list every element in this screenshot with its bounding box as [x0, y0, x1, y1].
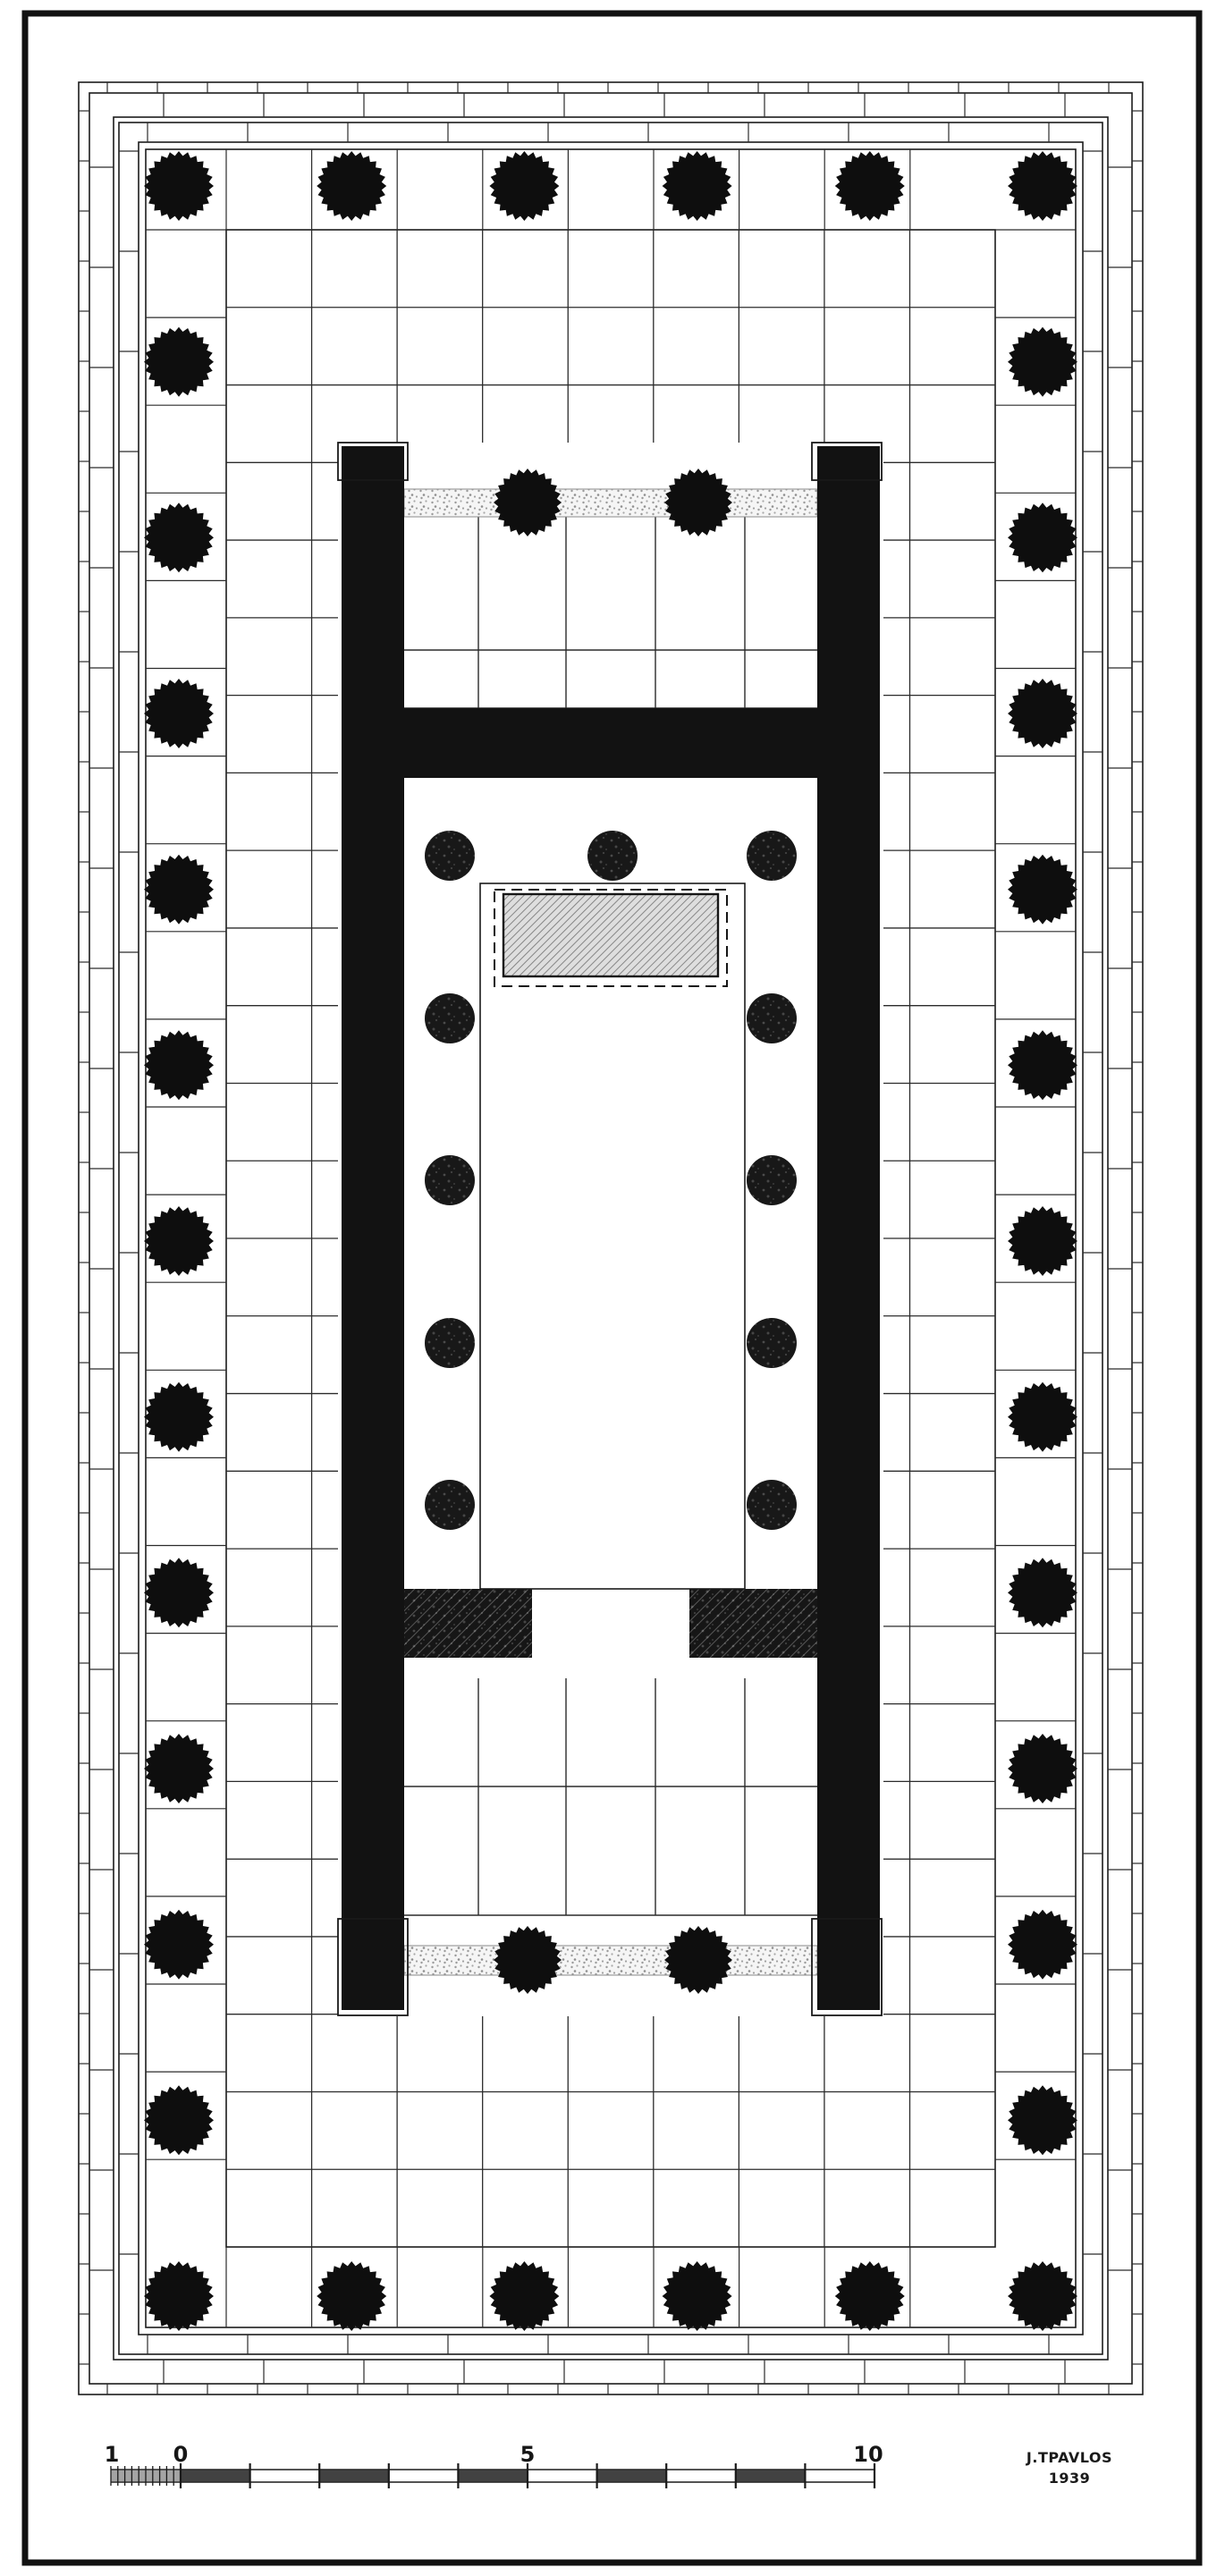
scale-dark-segment: [597, 2470, 667, 2482]
pronaos-cross-wall: [404, 708, 817, 778]
scale-label-0: 0: [173, 2442, 189, 2467]
fluted-column: [144, 1734, 214, 1803]
fluted-column: [144, 1910, 214, 1980]
fluted-column: [144, 679, 214, 748]
fluted-column: [144, 503, 214, 572]
scale-dark-segment: [319, 2470, 389, 2482]
fluted-column: [835, 151, 905, 221]
scale-label-1: 1: [105, 2442, 120, 2467]
cella-floor: [338, 443, 883, 2016]
fluted-column: [663, 151, 732, 221]
interior-column-texture: [747, 1318, 797, 1368]
fluted-column: [1008, 327, 1077, 397]
interior-column-texture: [425, 1318, 475, 1368]
interior-column-texture: [425, 1480, 475, 1530]
interior-column-texture: [425, 993, 475, 1043]
signature-year: 1939: [1049, 2470, 1091, 2487]
scale-dark-segment: [181, 2470, 250, 2482]
fluted-column: [1008, 855, 1077, 925]
plan-geometry: [0, 0, 1225, 2576]
interior-column-texture: [747, 993, 797, 1043]
temple-floor-plan: 1 0 5 10 J.TPAVLOS 1939: [0, 0, 1225, 2576]
fluted-column: [494, 1926, 562, 1994]
fluted-column: [664, 469, 732, 536]
plan-sheet: 1 0 5 10 J.TPAVLOS 1939: [0, 0, 1225, 2576]
fluted-column: [1008, 503, 1077, 572]
interior-column-texture: [747, 1480, 797, 1530]
fluted-column: [1008, 2085, 1077, 2155]
interior-column-texture: [425, 1155, 475, 1205]
fluted-column: [144, 2085, 214, 2155]
cella-wall-left: [342, 446, 404, 2010]
signature-name: J.TPAVLOS: [1026, 2449, 1112, 2466]
scale-dark-segment: [458, 2470, 528, 2482]
fluted-column: [489, 151, 559, 221]
interior-column-texture: [747, 831, 797, 881]
scale-label-10: 10: [853, 2442, 883, 2467]
pier-speckle: [404, 1589, 532, 1658]
interior-column-texture: [747, 1155, 797, 1205]
scale-label-5: 5: [520, 2442, 536, 2467]
fluted-column: [1008, 1030, 1077, 1100]
fluted-column: [144, 1206, 214, 1276]
porch-stylobate: [404, 1946, 817, 1975]
interior-column-texture: [425, 831, 475, 881]
fluted-column: [144, 151, 214, 221]
statue-base: [494, 890, 727, 986]
fluted-column: [144, 1382, 214, 1452]
cella-wall-right: [817, 446, 880, 2010]
pier-speckle: [689, 1589, 817, 1658]
cella: [338, 443, 883, 2016]
fluted-column: [144, 1030, 214, 1100]
fluted-column: [144, 327, 214, 397]
scale-dark-segment: [736, 2470, 806, 2482]
fluted-column: [1008, 1206, 1077, 1276]
fluted-column: [1008, 151, 1077, 221]
porch-stylobate: [404, 489, 817, 517]
statue-base-hatched: [503, 894, 718, 976]
fluted-column: [1008, 1558, 1077, 1627]
fluted-column: [1008, 1910, 1077, 1980]
fluted-column: [1008, 1734, 1077, 1803]
interior-column-texture: [587, 831, 638, 881]
fluted-column: [317, 2261, 386, 2331]
fluted-column: [1008, 679, 1077, 748]
fluted-column: [144, 2261, 214, 2331]
fluted-column: [1008, 1382, 1077, 1452]
fluted-column: [663, 2261, 732, 2331]
fluted-column: [489, 2261, 559, 2331]
fluted-column: [144, 1558, 214, 1627]
fluted-column: [317, 151, 386, 221]
fluted-column: [144, 855, 214, 925]
fluted-column: [835, 2261, 905, 2331]
fluted-column: [494, 469, 562, 536]
fluted-column: [1008, 2261, 1077, 2331]
fluted-column: [664, 1926, 732, 1994]
